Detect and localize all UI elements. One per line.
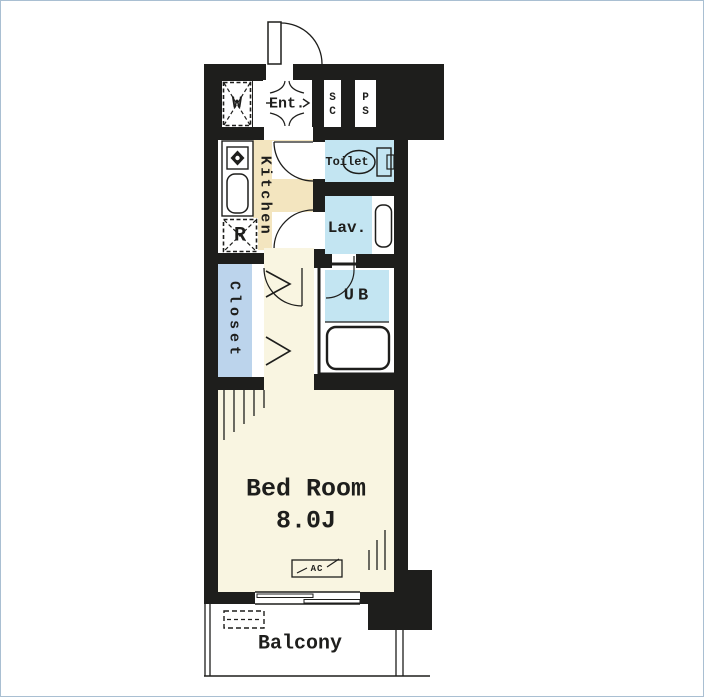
balcony-window-icon: [255, 592, 360, 604]
toilet-label: Toilet: [325, 155, 368, 169]
kitchen-label: Kitchen: [257, 156, 274, 237]
lavatory-door-gap: [313, 212, 325, 249]
pipe-space-letter-2: S: [362, 106, 369, 118]
floor-plan-svg: W Ent. S C P S: [0, 0, 704, 697]
closet-front-strip: [252, 264, 264, 377]
pipe-space: P S: [355, 80, 376, 127]
entry-side-strip: [253, 81, 263, 127]
washer-label: W: [232, 95, 243, 114]
entrance-label: Ent.: [269, 96, 305, 113]
bedroom-name-label: Bed Room: [246, 475, 366, 504]
washer-space: W: [222, 81, 252, 127]
lavatory-label: Lav.: [328, 219, 366, 237]
closet-area: Closet: [218, 248, 314, 390]
toilet-door-gap: [313, 142, 325, 179]
wall-toilet-lav: [313, 182, 394, 196]
shoe-closet-letter-2: C: [329, 106, 336, 118]
stove-burner-center: [235, 156, 239, 160]
floor-plan-image: W Ent. S C P S: [0, 0, 704, 697]
refrigerator-label: R: [234, 225, 246, 248]
balcony-label: Balcony: [258, 633, 342, 656]
bedroom: Bed Room 8.0J AC: [218, 390, 394, 604]
wall-left: [204, 64, 218, 592]
entrance-hall: Ent.: [263, 80, 313, 141]
wall-below-lav: [313, 254, 408, 268]
lavatory-room: Lav.: [325, 196, 394, 254]
wall-below-bath: [314, 374, 408, 390]
wall-bottom-left: [204, 592, 255, 604]
closet-label: Closet: [226, 281, 243, 359]
bedroom-size-label: 8.0J: [276, 507, 336, 536]
entrance-corridor: [264, 127, 313, 141]
unit-bath-label: UB: [344, 287, 372, 306]
entrance-door-opening: [266, 64, 293, 81]
ac-label: AC: [311, 564, 324, 574]
passage-floor: [264, 248, 314, 390]
shoe-closet-letter-1: S: [329, 92, 336, 104]
shoe-closet: S C: [324, 80, 341, 127]
toilet-room: Toilet: [325, 140, 394, 182]
wall-below-closet: [204, 377, 267, 390]
bath-doorway-gap: [332, 254, 356, 268]
pipe-space-letter-1: P: [362, 92, 369, 104]
wall-below-counter: [204, 253, 264, 264]
